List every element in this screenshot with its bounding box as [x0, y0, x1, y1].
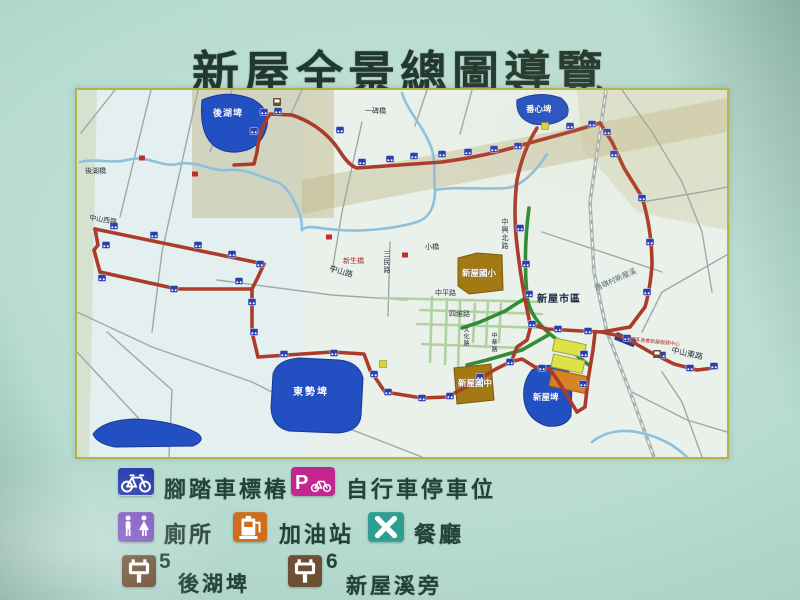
legend: 腳踏車標樁 P 自行車停車位 廁所 — [0, 455, 800, 600]
bicycle-marker-icon — [418, 395, 426, 402]
bicycle-marker-icon — [710, 363, 718, 370]
bicycle-marker-icon — [250, 329, 258, 336]
label-zhonghua-rd: 中華路 — [490, 332, 496, 353]
bicycle-marker-icon — [274, 108, 282, 115]
legend-number-5: 5 — [159, 550, 171, 574]
bridge-marker-icon — [402, 253, 408, 258]
bicycle-marker-icon — [528, 321, 536, 328]
bicycle-marker-icon — [330, 350, 338, 357]
label-small-bridge: 小橋 — [425, 244, 439, 251]
bridge-marker-icon — [192, 172, 198, 177]
label-zhongxing-n-rd: 中興北路 — [501, 218, 508, 250]
legend-number-6: 6 — [326, 550, 338, 574]
bicycle-marker-icon — [250, 128, 258, 135]
bicycle-marker-icon — [538, 365, 546, 372]
label-yibei-bridge: 一碑橋 — [365, 108, 386, 115]
bicycle-marker-icon — [260, 109, 268, 116]
label-xinwu-pond: 新屋埤 — [533, 393, 559, 402]
bicycle-post-icon — [118, 467, 154, 496]
bicycle-parking-icon: P — [291, 467, 335, 496]
bicycle-marker-icon — [588, 121, 596, 128]
bicycle-marker-icon — [228, 251, 236, 258]
label-houhu-pond: 後湖埤 — [213, 109, 243, 118]
bicycle-marker-icon — [248, 299, 256, 306]
bicycle-marker-icon — [370, 371, 378, 378]
legend-label-restaurant: 餐廳 — [414, 517, 464, 549]
poi-marker-icon — [380, 361, 387, 368]
label-downtown: 新屋市區 — [537, 295, 581, 305]
bicycle-marker-icon — [358, 159, 366, 166]
label-fanxin-pond: 番心埤 — [526, 105, 552, 114]
bicycle-marker-icon — [522, 261, 530, 268]
bicycle-marker-icon — [386, 156, 394, 163]
label-siwei-rd: 四維路 — [449, 311, 470, 318]
bridge-marker-icon — [139, 156, 145, 161]
bicycle-marker-icon — [646, 239, 654, 246]
label-dongshi-pond: 東勢埤 — [293, 388, 329, 398]
bicycle-marker-icon — [256, 261, 264, 268]
bicycle-marker-icon — [336, 127, 344, 134]
bicycle-marker-icon — [438, 151, 446, 158]
bicycle-marker-icon — [584, 328, 592, 335]
bicycle-marker-icon — [610, 151, 618, 158]
gas-station-icon — [233, 512, 267, 542]
bicycle-marker-icon — [194, 242, 202, 249]
bicycle-marker-icon — [464, 149, 472, 156]
bicycle-marker-icon — [566, 123, 574, 130]
map-panel: 後湖埤 番心埤 東勢埤 新屋埤 後湖橋 一碑橋 小橋 新生橋 中山西路 中山路 … — [75, 88, 729, 459]
bridge-marker-icon — [326, 235, 332, 240]
restaurant-icon — [368, 512, 404, 542]
bicycle-marker-icon — [638, 195, 646, 202]
bicycle-marker-icon — [384, 389, 392, 396]
bicycle-marker-icon — [150, 232, 158, 239]
label-xinsheng-bridge: 新生橋 — [343, 258, 364, 265]
bicycle-marker-icon — [525, 291, 533, 298]
poi-marker-icon — [542, 123, 549, 130]
legend-label-stop-6: 新屋溪旁 — [346, 570, 442, 600]
bicycle-marker-icon — [98, 275, 106, 282]
legend-label-bike-post: 腳踏車標樁 — [164, 472, 289, 504]
legend-label-toilet: 廁所 — [164, 517, 214, 549]
legend-label-bike-parking: 自行車停車位 — [346, 472, 496, 504]
bicycle-marker-icon — [235, 278, 243, 285]
label-junior-high: 新屋國中 — [458, 379, 492, 388]
bicycle-marker-icon — [516, 225, 524, 232]
label-elementary: 新屋國小 — [462, 269, 496, 278]
label-wenhua-rd: 文化路 — [462, 326, 468, 347]
bicycle-marker-icon — [506, 359, 514, 366]
bicycle-marker-icon — [514, 143, 522, 150]
label-houhu-bridge: 後湖橋 — [85, 168, 106, 175]
bicycle-marker-icon — [410, 153, 418, 160]
bicycle-marker-icon — [580, 351, 588, 358]
label-zhongping-rd: 中平路 — [435, 290, 456, 297]
bicycle-marker-icon — [579, 381, 587, 388]
bicycle-marker-icon — [446, 393, 454, 400]
bicycle-marker-icon — [686, 365, 694, 372]
signpost-marker-icon — [273, 98, 281, 106]
signpost-icon — [122, 555, 156, 587]
legend-label-gas-station: 加油站 — [279, 517, 354, 549]
bicycle-marker-icon — [603, 129, 611, 136]
signpost-marker-icon — [653, 350, 661, 358]
bicycle-marker-icon — [490, 146, 498, 153]
bicycle-marker-icon — [280, 351, 288, 358]
legend-label-stop-5: 後湖埤 — [178, 568, 250, 598]
toilet-icon — [118, 512, 154, 542]
bicycle-marker-icon — [643, 289, 651, 296]
label-sanmin-rd: 三民路 — [383, 250, 390, 274]
bicycle-marker-icon — [554, 326, 562, 333]
signpost-icon — [288, 555, 322, 587]
bicycle-marker-icon — [102, 242, 110, 249]
bicycle-marker-icon — [170, 286, 178, 293]
svg-text:P: P — [295, 472, 308, 494]
